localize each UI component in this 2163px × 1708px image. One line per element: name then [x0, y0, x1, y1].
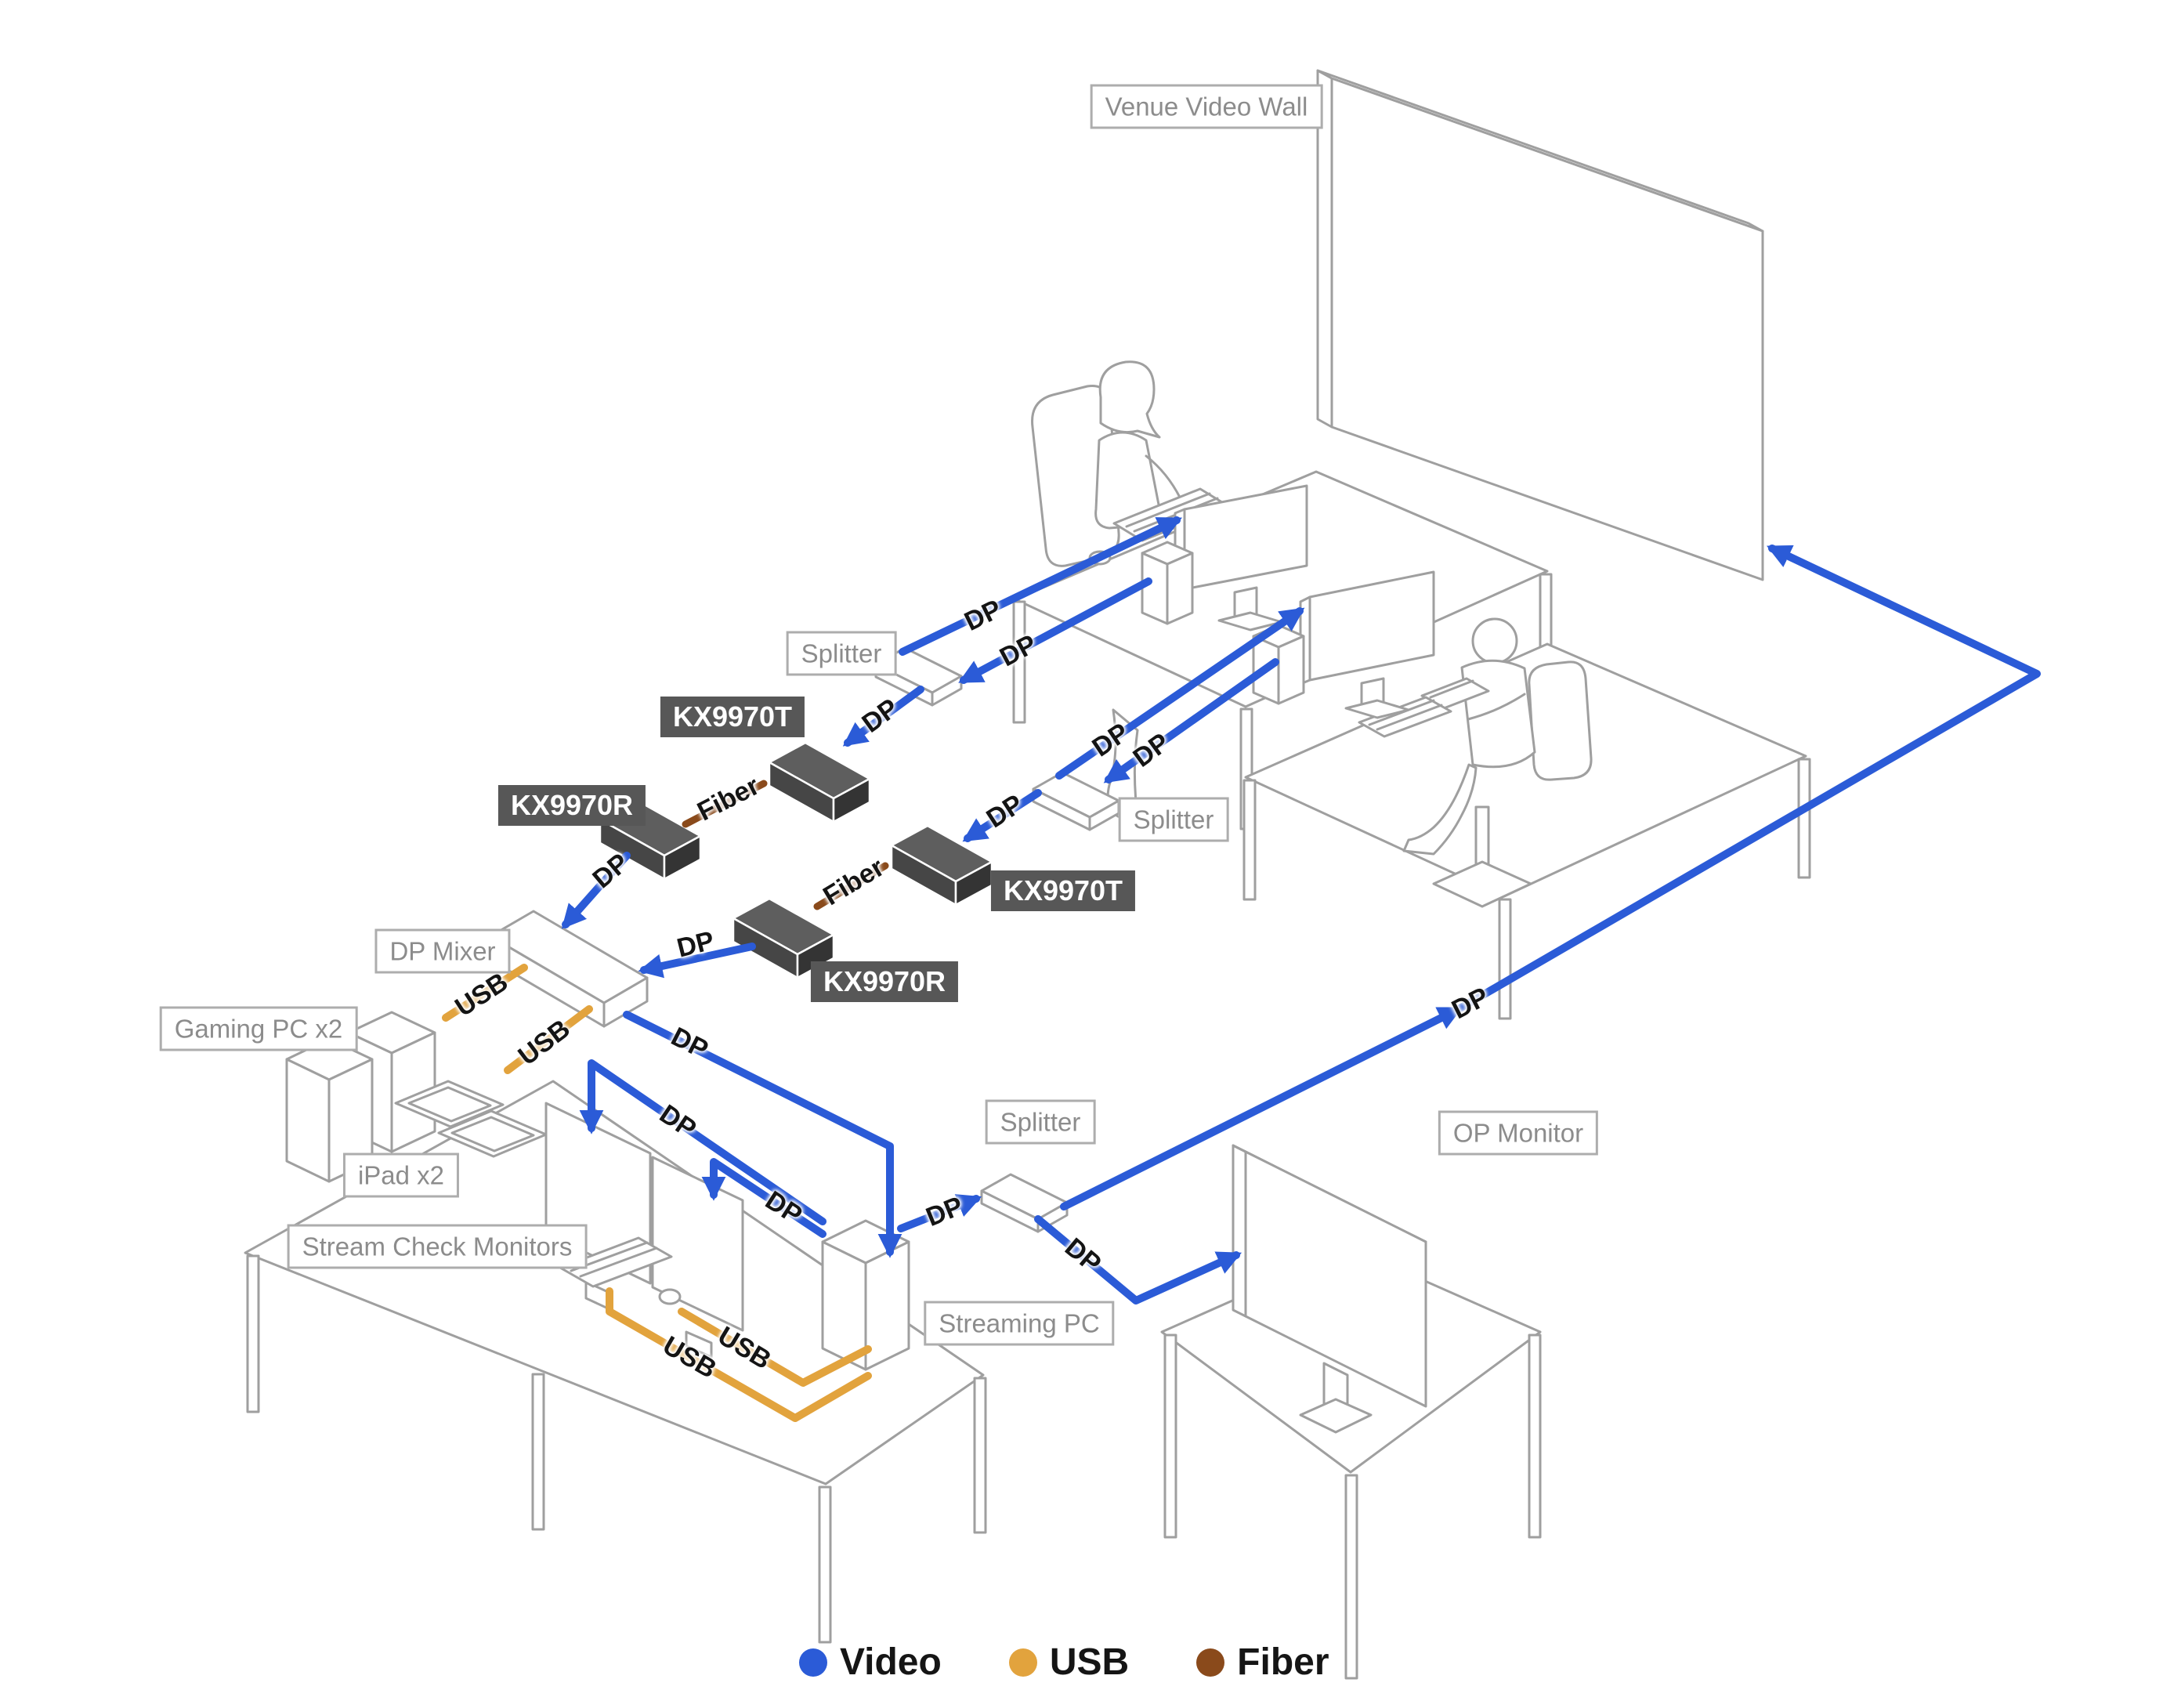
kx9970t-1-tag: KX9970T: [660, 697, 805, 737]
kx9970t-2-box: [892, 826, 992, 905]
gaming-monitor-2: [1300, 572, 1434, 718]
player-desk-2: [1244, 572, 1810, 1019]
scene-svg: [0, 0, 2163, 1708]
production-mouse: [660, 1290, 680, 1304]
kx9970r-2-tag: KX9970R: [811, 961, 958, 1002]
kx9970r-1-tag: KX9970R: [498, 785, 646, 826]
splitter-2-label: Splitter: [1119, 798, 1229, 842]
kx9970t-1-box: [769, 743, 870, 822]
dp-mixer-label: DP Mixer: [374, 929, 510, 974]
video-legend-dot-icon: [799, 1648, 827, 1677]
splitter-3-label: Splitter: [986, 1100, 1096, 1145]
legend-label: USB: [1050, 1644, 1129, 1681]
venue-video-wall-label: Venue Video Wall: [1091, 85, 1323, 129]
streaming-pc-label: Streaming PC: [924, 1301, 1114, 1346]
legend: Video USB Fiber: [799, 1644, 1329, 1681]
legend-item-usb: USB: [1009, 1644, 1129, 1681]
kx9970t-2-tag: KX9970T: [991, 870, 1135, 911]
legend-label: Fiber: [1237, 1644, 1329, 1681]
splitter-3-box: [982, 1174, 1067, 1232]
splitter-1-label: Splitter: [787, 631, 897, 676]
legend-item-fiber: Fiber: [1196, 1644, 1329, 1681]
fiber-legend-dot-icon: [1196, 1648, 1224, 1677]
legend-label: Video: [840, 1644, 942, 1681]
chair-2: [1529, 662, 1591, 780]
stream-check-monitors-label: Stream Check Monitors: [288, 1225, 588, 1269]
dp-mixer-box: [490, 911, 647, 1026]
usb-legend-dot-icon: [1009, 1648, 1037, 1677]
gaming-pc-label: Gaming PC x2: [160, 1007, 358, 1051]
ipad-label: iPad x2: [343, 1153, 459, 1198]
diagram-canvas: Venue Video Wall Splitter Splitter Split…: [0, 0, 2163, 1708]
legend-item-video: Video: [799, 1644, 942, 1681]
op-monitor-label: OP Monitor: [1438, 1111, 1598, 1156]
